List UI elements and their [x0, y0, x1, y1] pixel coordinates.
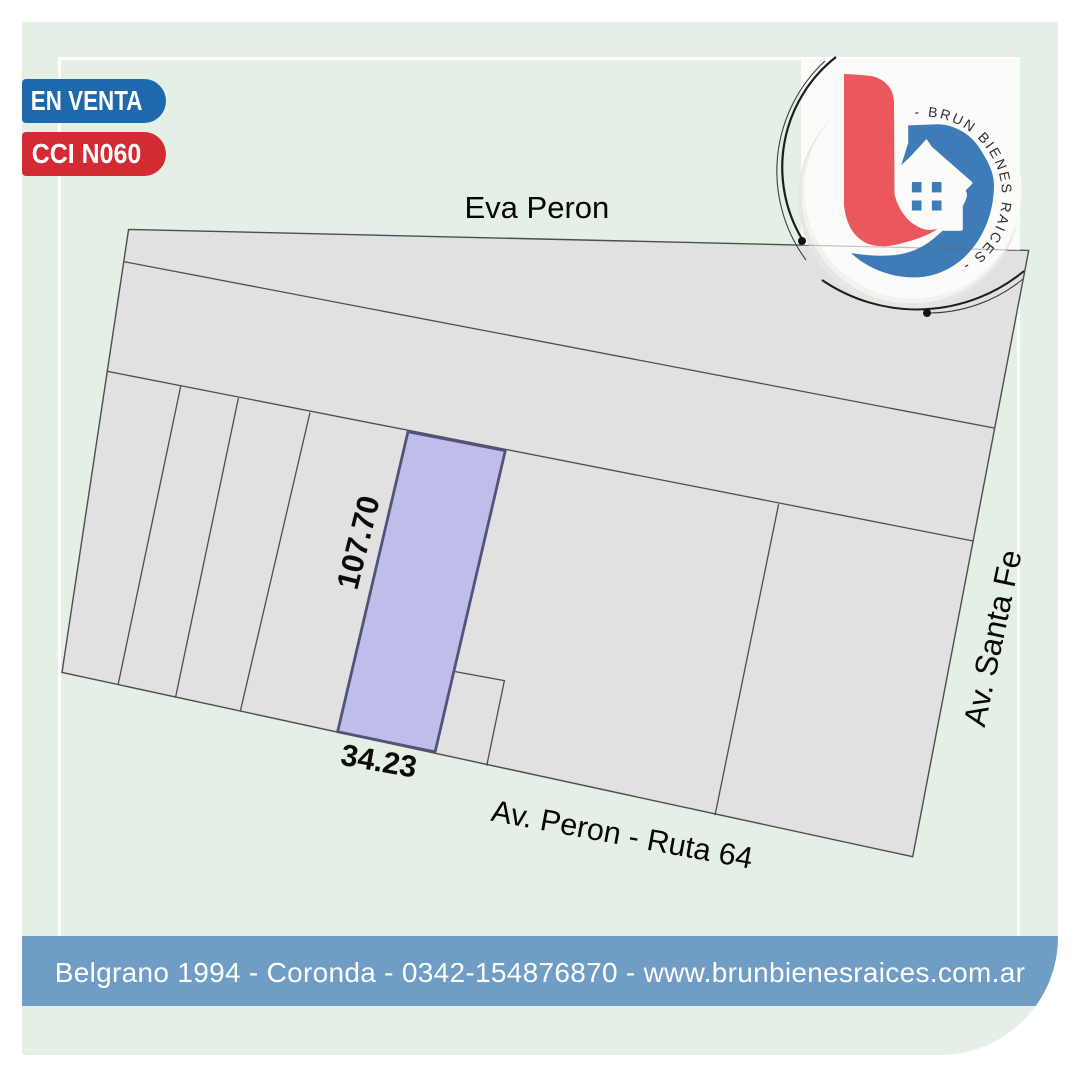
- svg-text:Eva Peron: Eva Peron: [465, 190, 610, 225]
